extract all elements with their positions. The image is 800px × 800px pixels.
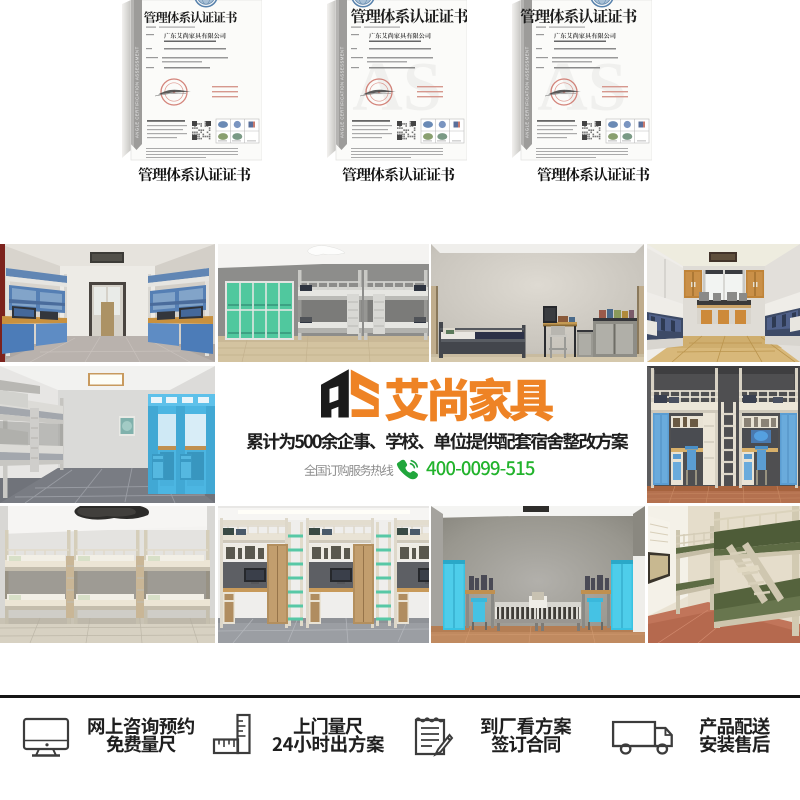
svg-text:AS: AS — [537, 49, 626, 126]
svg-text:ANGLE CERTIFICATION ASSESSMENT: ANGLE CERTIFICATION ASSESSMENT — [135, 46, 140, 138]
svg-text:AS: AS — [352, 49, 441, 126]
svg-text:ANGLE CERTIFICATION ASSESSMENT: ANGLE CERTIFICATION ASSESSMENT — [340, 46, 345, 138]
svg-text:ANGLE CERTIFICATION ASSESSMENT: ANGLE CERTIFICATION ASSESSMENT — [525, 46, 530, 138]
